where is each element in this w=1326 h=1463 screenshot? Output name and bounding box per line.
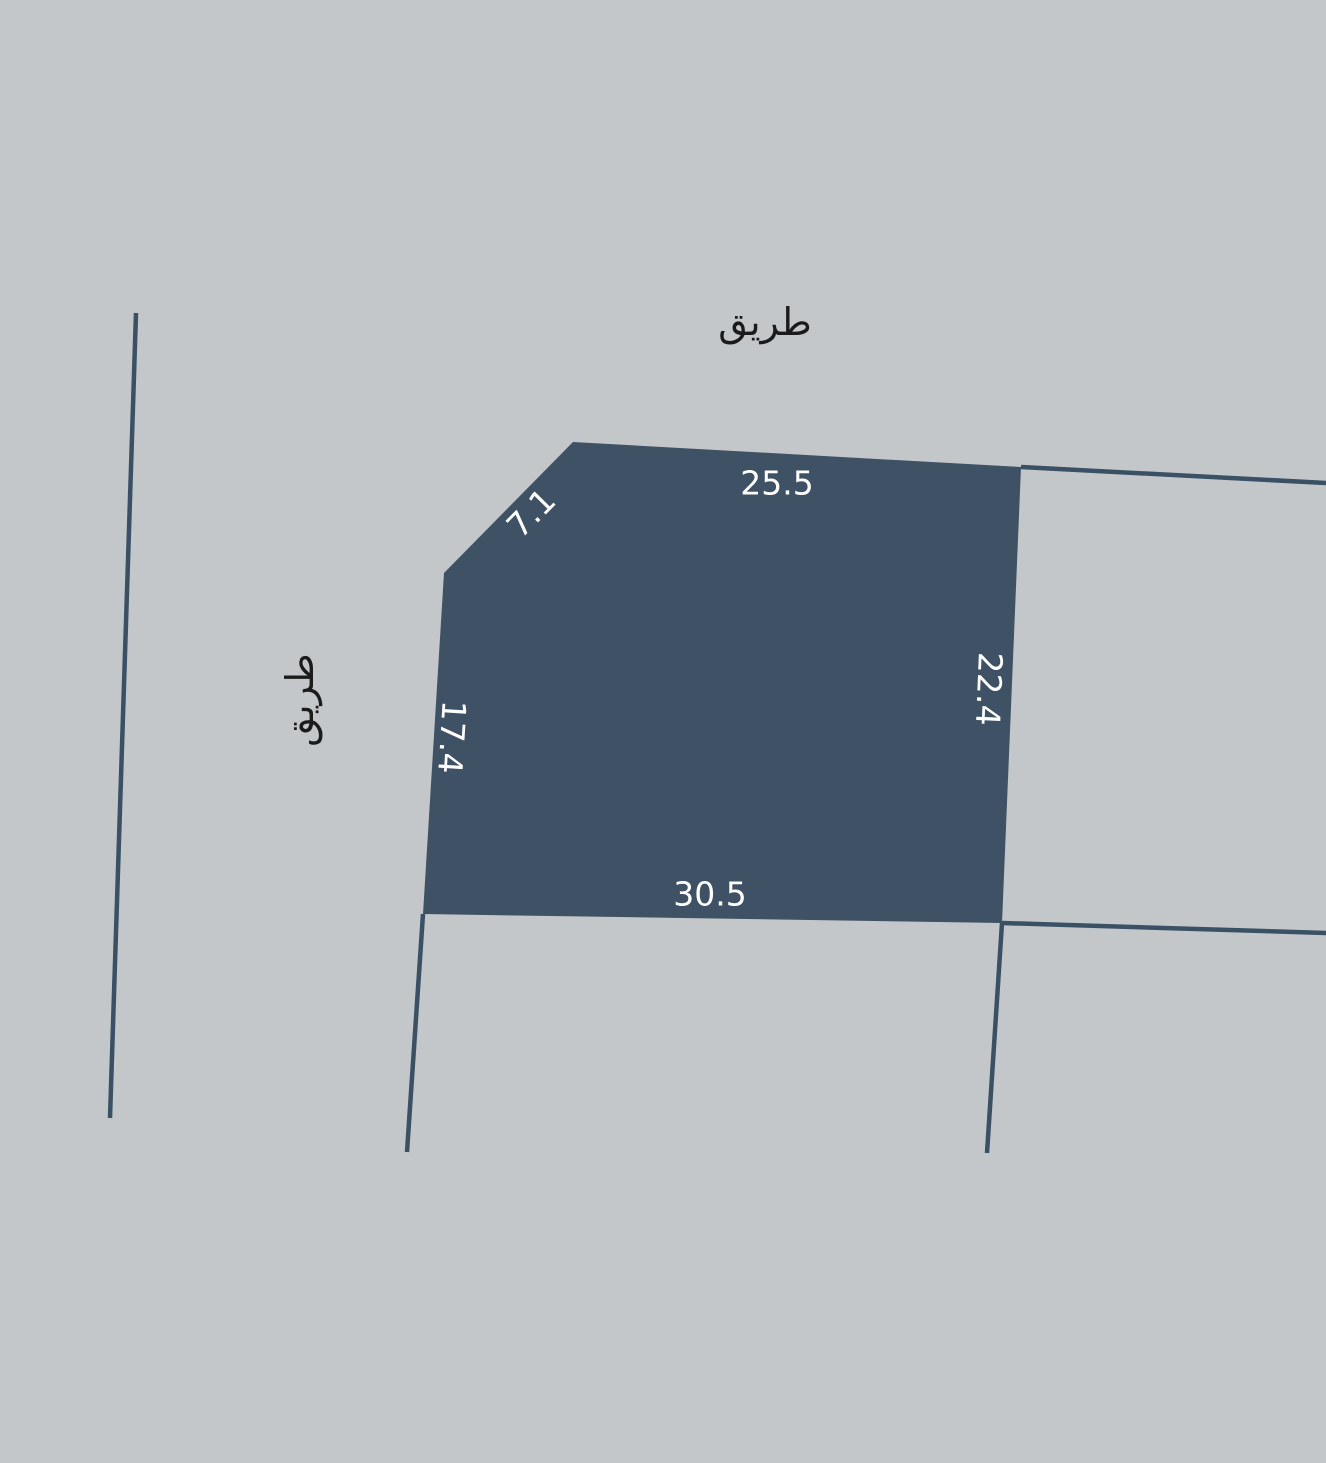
- dimension-label-right: 22.4: [968, 651, 1010, 726]
- left-road-boundary-line: [110, 313, 136, 1118]
- dimension-label-left: 17.4: [430, 699, 473, 775]
- parcel-map-canvas: طريق طريق 25.5 7.1 17.4 22.4 30.5: [0, 0, 1326, 1463]
- neighbor-boundary-line-bottom-right-down: [987, 923, 1002, 1153]
- neighbor-boundary-line-bottom-left-down: [407, 914, 423, 1152]
- dimension-label-bottom: 30.5: [673, 875, 746, 914]
- neighbor-boundary-line-top-right: [1021, 467, 1326, 483]
- road-label-top: طريق: [718, 300, 811, 345]
- road-label-left: طريق: [278, 653, 323, 746]
- cadastral-map-svg: طريق طريق 25.5 7.1 17.4 22.4 30.5: [0, 0, 1326, 1463]
- dimension-label-top: 25.5: [740, 464, 813, 503]
- neighbor-boundary-line-bottom-right: [1002, 923, 1326, 933]
